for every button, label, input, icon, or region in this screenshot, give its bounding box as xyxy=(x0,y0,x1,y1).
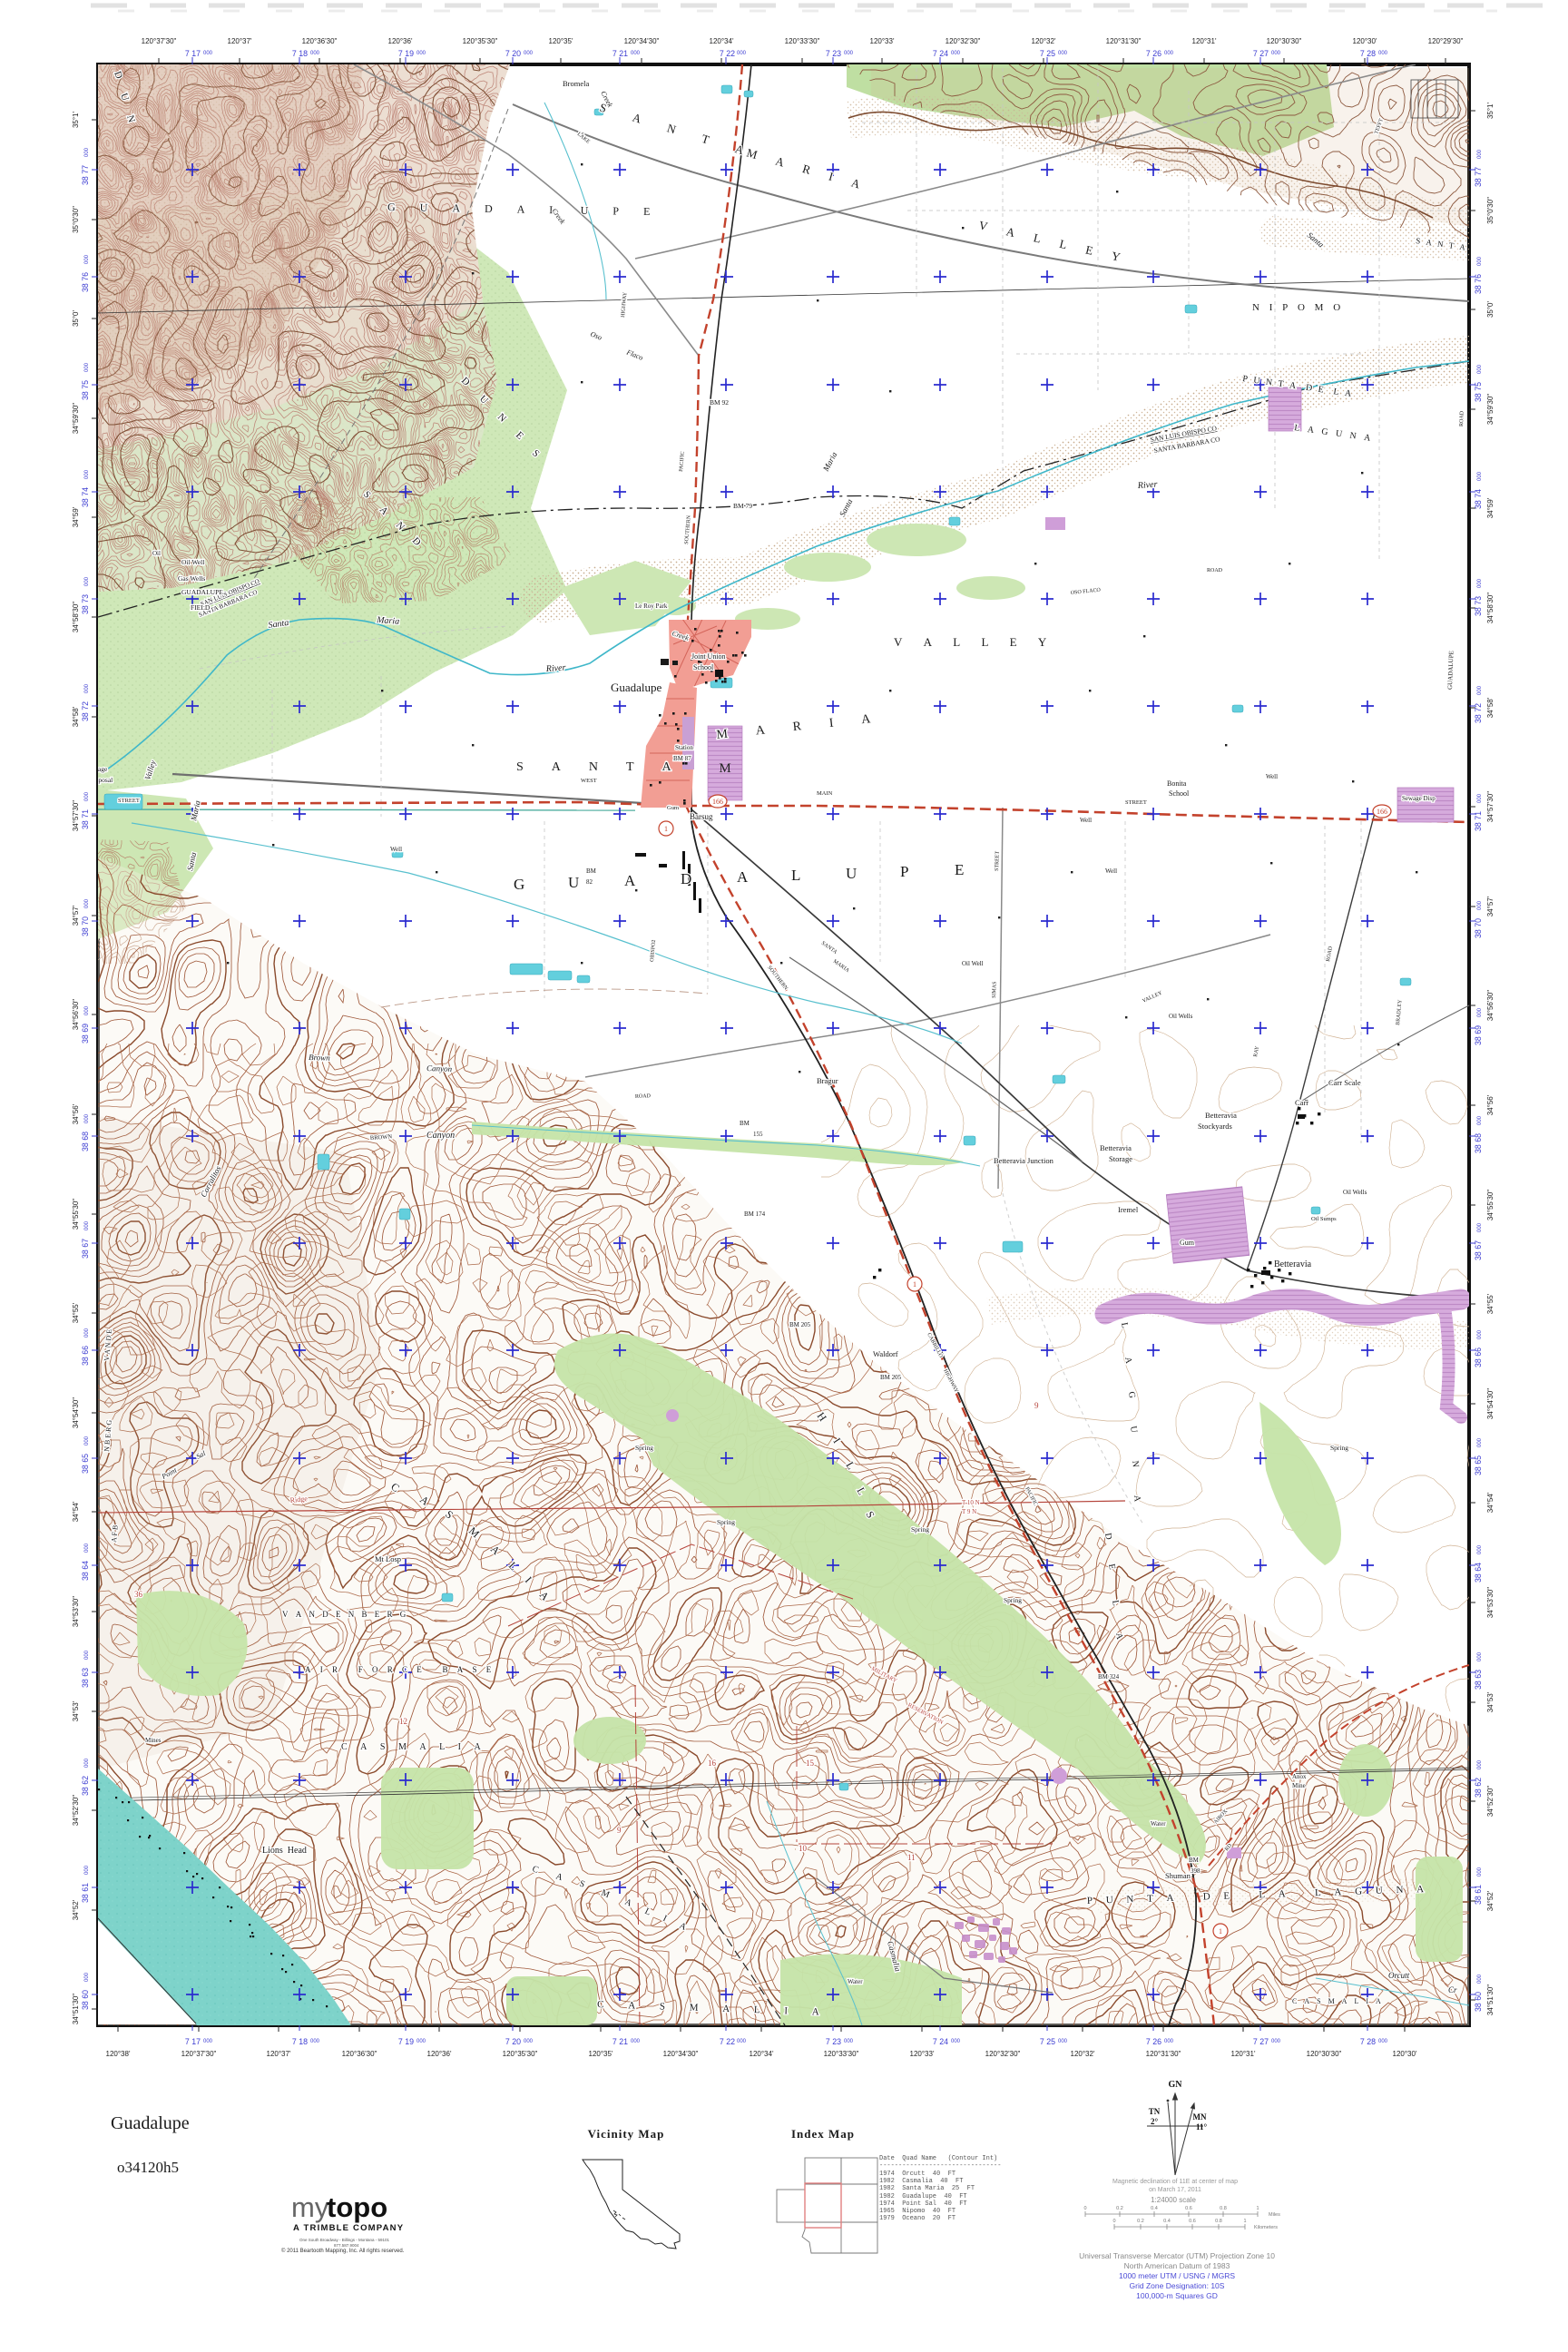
svg-text:School: School xyxy=(1169,789,1190,798)
svg-text:N: N xyxy=(1130,1460,1141,1467)
svg-text:BM 205: BM 205 xyxy=(789,1321,811,1328)
svg-text:34°56'30": 34°56'30" xyxy=(1486,990,1494,1021)
svg-text:34°56': 34°56' xyxy=(72,1103,80,1124)
svg-text:120°34': 120°34' xyxy=(750,2050,774,2058)
svg-text:7 17: 7 17 xyxy=(185,2037,201,2046)
svg-text:M: M xyxy=(719,761,730,776)
svg-text:38 63: 38 63 xyxy=(81,1668,90,1688)
svg-text:120°31'30": 120°31'30" xyxy=(1146,2050,1181,2058)
svg-text:Universal Transverse Mercator: Universal Transverse Mercator (UTM) Proj… xyxy=(1079,2251,1275,2260)
svg-text:120°31': 120°31' xyxy=(1231,2050,1256,2058)
svg-text:Carr Scale: Carr Scale xyxy=(1328,1078,1361,1087)
svg-text:000: 000 xyxy=(84,147,90,157)
svg-text:Bragur: Bragur xyxy=(817,1076,838,1085)
svg-text:120°33': 120°33' xyxy=(870,37,895,45)
svg-text:34°56'30": 34°56'30" xyxy=(72,999,80,1030)
svg-text:38 67: 38 67 xyxy=(81,1239,90,1259)
svg-text:Water: Water xyxy=(848,1978,863,1985)
svg-text:Cr: Cr xyxy=(1448,1985,1457,1994)
svg-text:000: 000 xyxy=(1477,1974,1483,1984)
svg-text:7 26: 7 26 xyxy=(1146,2037,1161,2046)
svg-text:7 28: 7 28 xyxy=(1360,2037,1376,2046)
svg-text:000: 000 xyxy=(1477,578,1483,588)
svg-text:Maria: Maria xyxy=(376,615,400,627)
svg-text:A: A xyxy=(624,872,636,889)
svg-text:D: D xyxy=(681,870,691,887)
svg-text:o34120h5: o34120h5 xyxy=(117,2159,179,2176)
svg-text:34°58': 34°58' xyxy=(1486,697,1494,718)
svg-text:000: 000 xyxy=(1477,1759,1483,1769)
svg-text:38 66: 38 66 xyxy=(81,1346,90,1366)
svg-text:Mt Losp: Mt Losp xyxy=(375,1554,401,1563)
svg-text:000: 000 xyxy=(951,2039,961,2044)
svg-text:7 21: 7 21 xyxy=(612,49,628,58)
svg-text:7 25: 7 25 xyxy=(1040,2037,1055,2046)
svg-text:120°30': 120°30' xyxy=(1393,2050,1417,2058)
svg-text:Brown: Brown xyxy=(309,1053,331,1063)
svg-text:Magnetic declination of 11E at: Magnetic declination of 11E at center of… xyxy=(1112,2179,1238,2185)
svg-text:120°34': 120°34' xyxy=(710,37,734,45)
svg-text:34°51'30": 34°51'30" xyxy=(72,1994,80,2024)
svg-text:7 17: 7 17 xyxy=(185,49,201,58)
svg-text:38 75: 38 75 xyxy=(81,380,90,400)
svg-text:35°0'30": 35°0'30" xyxy=(72,206,80,233)
svg-text:Grid Zone Designation: 10S: Grid Zone Designation: 10S xyxy=(1130,2281,1225,2290)
svg-text:120°30'30": 120°30'30" xyxy=(1267,37,1302,45)
svg-text:34°52'30": 34°52'30" xyxy=(1486,1786,1494,1817)
svg-text:38 65: 38 65 xyxy=(81,1454,90,1474)
svg-text:35°1': 35°1' xyxy=(72,111,80,128)
svg-text:Spring: Spring xyxy=(911,1525,929,1534)
svg-text:1: 1 xyxy=(664,825,668,833)
svg-text:1: 1 xyxy=(1256,2206,1259,2211)
svg-text:Iremel: Iremel xyxy=(1118,1205,1139,1214)
svg-text:Station: Station xyxy=(675,744,693,751)
svg-text:BM 205: BM 205 xyxy=(880,1374,902,1381)
svg-text:34°55'30": 34°55'30" xyxy=(72,1199,80,1230)
svg-text:34°53': 34°53' xyxy=(1486,1691,1494,1712)
svg-text:------------------------------: -------------------------------- xyxy=(879,2162,1001,2170)
svg-text:ROAD: ROAD xyxy=(1207,568,1223,573)
svg-text:7 24: 7 24 xyxy=(933,2037,948,2046)
svg-text:Carr: Carr xyxy=(1295,1098,1308,1107)
svg-text:7 18: 7 18 xyxy=(292,2037,308,2046)
svg-text:34°58': 34°58' xyxy=(72,706,80,727)
svg-text:120°37'30": 120°37'30" xyxy=(142,37,177,45)
svg-text:120°34'30": 120°34'30" xyxy=(624,37,660,45)
svg-text:BM 79: BM 79 xyxy=(733,502,752,510)
svg-text:BM: BM xyxy=(586,867,597,875)
svg-text:7 27: 7 27 xyxy=(1253,49,1269,58)
svg-text:1982 Guadalupe 40 FT: 1982 Guadalupe 40 FT xyxy=(879,2193,967,2200)
svg-text:GN: GN xyxy=(1169,2080,1183,2090)
svg-text:BM: BM xyxy=(740,1120,750,1127)
svg-text:34°54': 34°54' xyxy=(72,1501,80,1522)
svg-text:STREET: STREET xyxy=(1125,799,1147,806)
svg-text:38 71: 38 71 xyxy=(81,809,90,829)
svg-text:120°35': 120°35' xyxy=(589,2050,613,2058)
svg-text:34°57'30": 34°57'30" xyxy=(72,800,80,831)
svg-text:000: 000 xyxy=(84,1758,90,1768)
svg-text:7 25: 7 25 xyxy=(1040,49,1055,58)
svg-text:000: 000 xyxy=(84,1650,90,1660)
svg-text:Lions Head: Lions Head xyxy=(262,1846,307,1856)
svg-text:120°38': 120°38' xyxy=(106,2050,131,2058)
svg-text:Oil Wells: Oil Wells xyxy=(1343,1189,1367,1196)
svg-text:Gum: Gum xyxy=(667,805,679,811)
svg-text:15: 15 xyxy=(806,1759,815,1768)
svg-text:000: 000 xyxy=(1477,364,1483,374)
svg-text:L: L xyxy=(791,867,800,884)
svg-text:35°0': 35°0' xyxy=(1486,300,1494,318)
svg-text:34°57': 34°57' xyxy=(72,905,80,926)
svg-text:FIELD: FIELD xyxy=(191,603,211,612)
svg-text:Date Quad Name (Contour Int: Date Quad Name (Contour Int) xyxy=(879,2155,997,2162)
svg-text:Storage: Storage xyxy=(1109,1154,1132,1163)
svg-text:Le Roy Park: Le Roy Park xyxy=(635,603,668,610)
svg-text:7 19: 7 19 xyxy=(398,49,414,58)
svg-text:000: 000 xyxy=(1477,1651,1483,1661)
svg-text:0.4: 0.4 xyxy=(1151,2206,1158,2211)
svg-text:7 22: 7 22 xyxy=(720,49,735,58)
svg-text:000: 000 xyxy=(84,1220,90,1230)
svg-text:877.587.9004: 877.587.9004 xyxy=(334,2243,359,2248)
svg-text:topo: topo xyxy=(327,2191,387,2223)
svg-text:000: 000 xyxy=(203,51,213,56)
svg-text:Gas Wells: Gas Wells xyxy=(178,574,205,583)
svg-text:BM 87: BM 87 xyxy=(673,755,691,762)
svg-text:Waldorf: Waldorf xyxy=(873,1349,898,1358)
svg-text:120°32': 120°32' xyxy=(1071,2050,1095,2058)
svg-text:000: 000 xyxy=(844,2039,854,2044)
svg-text:P: P xyxy=(900,863,908,880)
svg-text:E: E xyxy=(955,861,964,878)
svg-text:000: 000 xyxy=(84,1005,90,1015)
svg-text:River: River xyxy=(1136,480,1157,492)
svg-text:38 72: 38 72 xyxy=(81,701,90,721)
svg-text:0.8: 0.8 xyxy=(1220,2206,1227,2211)
svg-text:A I R F O R C E B A S E: A I R F O R C E B A S E xyxy=(305,1665,495,1674)
svg-text:Well: Well xyxy=(1105,867,1117,875)
svg-text:1: 1 xyxy=(913,1280,916,1289)
svg-text:7 26: 7 26 xyxy=(1146,49,1161,58)
svg-text:000: 000 xyxy=(737,51,747,56)
svg-text:000: 000 xyxy=(416,2039,426,2044)
svg-text:120°30': 120°30' xyxy=(1353,37,1377,45)
svg-text:1982 Santa Maria 25 FT: 1982 Santa Maria 25 FT xyxy=(879,2185,975,2192)
svg-text:120°31': 120°31' xyxy=(1192,37,1217,45)
svg-text:Vicinity Map: Vicinity Map xyxy=(588,2127,665,2141)
svg-text:BM 324: BM 324 xyxy=(1098,1673,1120,1681)
svg-text:000: 000 xyxy=(84,1865,90,1875)
svg-text:34°55': 34°55' xyxy=(1486,1293,1494,1314)
svg-text:120°35'30": 120°35'30" xyxy=(503,2050,538,2058)
svg-text:000: 000 xyxy=(631,51,641,56)
svg-text:34°53'30": 34°53'30" xyxy=(72,1596,80,1627)
svg-text:9: 9 xyxy=(617,1826,622,1835)
svg-text:000: 000 xyxy=(631,2039,641,2044)
svg-text:7 27: 7 27 xyxy=(1253,2037,1269,2046)
svg-text:Oil Well: Oil Well xyxy=(181,558,204,566)
svg-text:Well: Well xyxy=(390,846,402,853)
svg-text:Shuman: Shuman xyxy=(1165,1871,1191,1880)
svg-text:12: 12 xyxy=(399,1717,407,1726)
svg-text:0.2: 0.2 xyxy=(1137,2219,1144,2224)
svg-text:34°59': 34°59' xyxy=(72,506,80,527)
svg-text:Water: Water xyxy=(1151,1820,1166,1828)
svg-text:1974 Orcutt 40 FT: 1974 Orcutt 40 FT xyxy=(879,2171,955,2178)
svg-text:120°36'30": 120°36'30" xyxy=(302,37,338,45)
svg-text:N I P O M O: N I P O M O xyxy=(1252,302,1344,313)
svg-text:166: 166 xyxy=(1377,808,1387,816)
svg-text:000: 000 xyxy=(1271,51,1281,56)
svg-text:on March 17, 2011: on March 17, 2011 xyxy=(1149,2187,1201,2193)
svg-text:Spring: Spring xyxy=(717,1518,735,1526)
svg-text:STREET: STREET xyxy=(995,851,1001,872)
svg-text:000: 000 xyxy=(1477,1867,1483,1877)
svg-text:38 62: 38 62 xyxy=(81,1776,90,1796)
svg-text:Canyon: Canyon xyxy=(426,1063,453,1073)
svg-text:1: 1 xyxy=(1243,2219,1246,2224)
svg-text:35°0'30": 35°0'30" xyxy=(1486,197,1494,224)
svg-text:Betteravia: Betteravia xyxy=(1100,1143,1132,1152)
svg-text:000: 000 xyxy=(84,362,90,372)
svg-text:000: 000 xyxy=(310,51,320,56)
svg-text:000: 000 xyxy=(84,1543,90,1553)
svg-text:WEST: WEST xyxy=(581,778,597,784)
svg-text:1:24000 scale: 1:24000 scale xyxy=(1151,2196,1196,2204)
svg-text:Betteravia: Betteravia xyxy=(1274,1259,1312,1269)
svg-text:Oil Wells: Oil Wells xyxy=(1169,1013,1193,1020)
svg-text:36: 36 xyxy=(134,1590,143,1599)
svg-text:000: 000 xyxy=(844,51,854,56)
svg-text:34°52': 34°52' xyxy=(72,1899,80,1920)
svg-text:38 70: 38 70 xyxy=(81,916,90,936)
svg-text:A F B: A F B xyxy=(110,1524,120,1543)
svg-text:000: 000 xyxy=(84,254,90,264)
svg-text:U: U xyxy=(568,874,579,891)
svg-text:38 74: 38 74 xyxy=(81,487,90,507)
svg-text:0.6: 0.6 xyxy=(1185,2206,1192,2211)
svg-text:MN: MN xyxy=(1193,2112,1207,2122)
svg-text:MAIN: MAIN xyxy=(817,790,833,797)
svg-text:120°33'30": 120°33'30" xyxy=(824,2050,859,2058)
svg-text:7 19: 7 19 xyxy=(398,2037,414,2046)
svg-text:0.4: 0.4 xyxy=(1163,2219,1171,2224)
svg-text:120°30'30": 120°30'30" xyxy=(1307,2050,1342,2058)
svg-text:BM 92: BM 92 xyxy=(710,398,729,407)
svg-text:BM: BM xyxy=(1189,1857,1200,1864)
svg-text:Well: Well xyxy=(1266,773,1278,780)
svg-text:120°37': 120°37' xyxy=(267,2050,291,2058)
svg-text:000: 000 xyxy=(1477,1437,1483,1447)
svg-text:Betteravia: Betteravia xyxy=(1205,1111,1237,1120)
svg-text:000: 000 xyxy=(1164,51,1174,56)
svg-text:38 73: 38 73 xyxy=(81,594,90,614)
svg-text:120°32'30": 120°32'30" xyxy=(985,2050,1021,2058)
svg-text:C A S M A L I A: C A S M A L I A xyxy=(341,1742,486,1752)
svg-text:GUADALUPE: GUADALUPE xyxy=(181,588,223,596)
svg-text:120°32'30": 120°32'30" xyxy=(946,37,981,45)
svg-text:SIMAS: SIMAS xyxy=(992,982,998,999)
svg-text:000: 000 xyxy=(1477,1115,1483,1125)
svg-text:34°57'30": 34°57'30" xyxy=(1486,791,1494,822)
svg-text:Spring: Spring xyxy=(635,1444,653,1452)
svg-text:16: 16 xyxy=(708,1759,717,1768)
svg-text:34°53': 34°53' xyxy=(72,1700,80,1721)
svg-text:Mine: Mine xyxy=(1292,1782,1306,1789)
svg-text:Oil Sumps: Oil Sumps xyxy=(1311,1216,1337,1222)
svg-text:000: 000 xyxy=(1378,2039,1388,2044)
svg-text:BM 174: BM 174 xyxy=(744,1210,766,1218)
svg-text:Oil Well: Oil Well xyxy=(962,960,984,967)
svg-text:000: 000 xyxy=(1378,51,1388,56)
svg-text:000: 000 xyxy=(1058,2039,1068,2044)
svg-text:7 23: 7 23 xyxy=(826,49,841,58)
svg-text:120°33'30": 120°33'30" xyxy=(785,37,820,45)
svg-text:7 28: 7 28 xyxy=(1360,49,1376,58)
svg-text:82: 82 xyxy=(586,878,593,886)
svg-text:38 76: 38 76 xyxy=(81,272,90,292)
svg-text:000: 000 xyxy=(84,576,90,586)
svg-text:34°54'30": 34°54'30" xyxy=(72,1397,80,1428)
svg-text:A TRIMBLE COMPANY: A TRIMBLE COMPANY xyxy=(293,2223,404,2233)
svg-text:River: River xyxy=(544,663,565,675)
svg-text:TN: TN xyxy=(1149,2107,1161,2116)
svg-text:000: 000 xyxy=(84,1972,90,1982)
svg-text:1982 Casmalia 40 FT: 1982 Casmalia 40 FT xyxy=(879,2178,963,2185)
svg-text:0: 0 xyxy=(1083,2206,1086,2211)
svg-text:38 61: 38 61 xyxy=(81,1883,90,1903)
svg-text:155: 155 xyxy=(753,1131,763,1138)
svg-text:T 10 N: T 10 N xyxy=(962,1499,980,1506)
svg-text:34°54': 34°54' xyxy=(1486,1492,1494,1513)
svg-text:Spring: Spring xyxy=(1330,1444,1348,1452)
svg-text:000: 000 xyxy=(1477,1007,1483,1017)
svg-text:G: G xyxy=(514,876,524,893)
svg-text:120°36': 120°36' xyxy=(427,2050,452,2058)
svg-text:000: 000 xyxy=(1477,1222,1483,1232)
svg-text:000: 000 xyxy=(1477,793,1483,803)
svg-text:34°53'30": 34°53'30" xyxy=(1486,1587,1494,1618)
svg-text:34°52'30": 34°52'30" xyxy=(72,1795,80,1826)
svg-text:ROAD: ROAD xyxy=(1459,410,1465,426)
svg-text:C A S M A L I A: C A S M A L I A xyxy=(1292,1997,1384,2005)
svg-text:Anox: Anox xyxy=(1292,1773,1307,1780)
svg-text:Sewage Disp: Sewage Disp xyxy=(1402,795,1436,802)
svg-text:34°59': 34°59' xyxy=(1486,497,1494,518)
svg-text:U: U xyxy=(846,865,857,882)
svg-text:0: 0 xyxy=(1112,2219,1115,2224)
svg-text:120°36': 120°36' xyxy=(388,37,413,45)
svg-text:34°58'30": 34°58'30" xyxy=(1486,593,1494,623)
svg-text:7 24: 7 24 xyxy=(933,49,948,58)
svg-text:Barsug: Barsug xyxy=(690,812,713,821)
svg-text:Miles: Miles xyxy=(1269,2212,1280,2218)
svg-text:Guadalupe: Guadalupe xyxy=(611,681,662,694)
svg-text:000: 000 xyxy=(1271,2039,1281,2044)
svg-text:000: 000 xyxy=(951,51,961,56)
svg-text:398: 398 xyxy=(1191,1867,1200,1875)
svg-text:Betteravia Junction: Betteravia Junction xyxy=(994,1156,1054,1165)
svg-text:34°54'30": 34°54'30" xyxy=(1486,1388,1494,1419)
svg-text:11: 11 xyxy=(907,1853,916,1862)
svg-text:120°33': 120°33' xyxy=(910,2050,935,2058)
svg-text:my: my xyxy=(291,2191,329,2223)
svg-text:Kilometers: Kilometers xyxy=(1254,2225,1278,2230)
svg-text:Bonita: Bonita xyxy=(1167,779,1187,788)
svg-text:School: School xyxy=(693,663,714,671)
svg-text:000: 000 xyxy=(84,1328,90,1338)
svg-text:000: 000 xyxy=(1477,1544,1483,1554)
svg-text:120°29'30": 120°29'30" xyxy=(1428,37,1464,45)
svg-text:120°34'30": 120°34'30" xyxy=(663,2050,699,2058)
svg-text:000: 000 xyxy=(1477,256,1483,266)
svg-text:000: 000 xyxy=(203,2039,213,2044)
svg-text:ROAD: ROAD xyxy=(635,1093,652,1100)
svg-text:000: 000 xyxy=(1477,471,1483,481)
svg-text:STREET: STREET xyxy=(118,798,140,804)
svg-text:One South Broadway - Billings: One South Broadway - Billings - Montana … xyxy=(299,2238,390,2242)
svg-text:G: G xyxy=(1126,1391,1137,1399)
svg-text:Well: Well xyxy=(1080,817,1092,824)
svg-text:35°1': 35°1' xyxy=(1486,102,1494,119)
svg-text:7 22: 7 22 xyxy=(720,2037,735,2046)
svg-text:1000 meter UTM / USNG / MGRS: 1000 meter UTM / USNG / MGRS xyxy=(1119,2271,1235,2280)
svg-text:120°32': 120°32' xyxy=(1032,37,1056,45)
svg-text:1974 Point Sal 40 FT: 1974 Point Sal 40 FT xyxy=(879,2200,967,2208)
svg-text:Joint Union: Joint Union xyxy=(691,652,726,661)
svg-text:120°37': 120°37' xyxy=(228,37,252,45)
svg-text:000: 000 xyxy=(1058,51,1068,56)
svg-text:38 68: 38 68 xyxy=(81,1132,90,1151)
svg-text:Oil: Oil xyxy=(152,550,161,557)
svg-text:000: 000 xyxy=(84,1436,90,1445)
svg-text:GUADALUPE: GUADALUPE xyxy=(1446,651,1455,690)
svg-text:1979 Oceano 20 FT: 1979 Oceano 20 FT xyxy=(879,2215,955,2222)
svg-text:0.6: 0.6 xyxy=(1189,2219,1196,2224)
svg-text:166: 166 xyxy=(712,798,723,806)
svg-text:000: 000 xyxy=(84,1113,90,1123)
svg-text:Gum: Gum xyxy=(1180,1239,1195,1247)
svg-text:38 69: 38 69 xyxy=(81,1024,90,1044)
svg-text:000: 000 xyxy=(737,2039,747,2044)
svg-text:2°: 2° xyxy=(1151,2117,1159,2126)
svg-text:Stockyards: Stockyards xyxy=(1198,1122,1232,1131)
svg-text:1: 1 xyxy=(1219,1927,1222,1935)
svg-text:000: 000 xyxy=(1477,149,1483,159)
svg-text:S A N T A: S A N T A xyxy=(516,760,679,774)
svg-text:34°51'30": 34°51'30" xyxy=(1486,1984,1494,2015)
svg-text:7 23: 7 23 xyxy=(826,2037,841,2046)
svg-text:V A N D E N B E R G: V A N D E N B E R G xyxy=(282,1610,408,1619)
svg-text:34°52': 34°52' xyxy=(1486,1890,1494,1911)
svg-text:7 21: 7 21 xyxy=(612,2037,628,2046)
svg-text:11°: 11° xyxy=(1196,2122,1208,2131)
svg-text:38 64: 38 64 xyxy=(81,1561,90,1581)
svg-text:34°59'30": 34°59'30" xyxy=(1486,394,1494,425)
svg-text:A: A xyxy=(737,868,749,886)
svg-text:Guadalupe: Guadalupe xyxy=(111,2113,190,2133)
svg-text:38 60: 38 60 xyxy=(81,1990,90,2010)
svg-text:1965 Nipomo 40 FT: 1965 Nipomo 40 FT xyxy=(879,2208,955,2215)
svg-text:9: 9 xyxy=(1034,1401,1039,1410)
svg-text:000: 000 xyxy=(1477,685,1483,695)
svg-text:0.2: 0.2 xyxy=(1116,2206,1123,2211)
svg-text:120°36'30": 120°36'30" xyxy=(342,2050,377,2058)
svg-text:34°58'30": 34°58'30" xyxy=(72,602,80,632)
svg-text:7 20: 7 20 xyxy=(505,2037,521,2046)
